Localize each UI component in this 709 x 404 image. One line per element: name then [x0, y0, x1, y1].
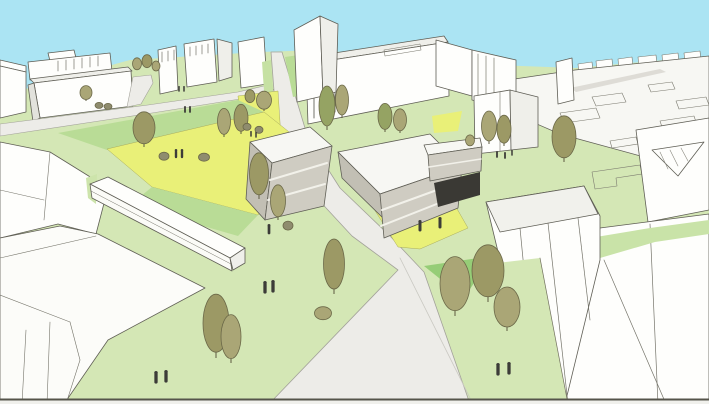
- person: [250, 131, 252, 136]
- 3d-model-viewport[interactable]: [0, 0, 709, 404]
- tree: [245, 90, 255, 103]
- person: [438, 217, 441, 227]
- person: [255, 132, 257, 137]
- person: [496, 363, 500, 374]
- bottom-border-light: [0, 401, 709, 404]
- building-right-a: [436, 40, 472, 96]
- tree: [152, 61, 160, 71]
- tree: [142, 55, 152, 68]
- person: [418, 220, 421, 230]
- person: [183, 86, 185, 91]
- building-far-left: [0, 66, 26, 118]
- person: [511, 150, 513, 155]
- person: [164, 370, 168, 381]
- person: [175, 149, 178, 157]
- tower-left-side: [217, 39, 232, 81]
- person: [507, 362, 511, 373]
- person: [178, 86, 180, 91]
- bush: [159, 152, 169, 160]
- person: [263, 281, 267, 292]
- bottom-border-dark: [0, 399, 709, 401]
- person: [184, 106, 186, 112]
- bush: [283, 221, 293, 230]
- bush: [199, 153, 210, 161]
- tower-center-front: [294, 16, 323, 102]
- tower-center-side: [320, 16, 338, 96]
- bush: [95, 102, 103, 108]
- person: [189, 106, 191, 112]
- bush: [243, 123, 251, 130]
- bush: [104, 103, 112, 109]
- tower-left-2: [184, 39, 217, 87]
- person: [496, 151, 498, 157]
- building-h-side: [510, 90, 538, 150]
- tree: [133, 58, 142, 70]
- person: [504, 152, 506, 158]
- 3d-render-canvas[interactable]: [0, 0, 709, 404]
- bush: [466, 135, 475, 146]
- person: [154, 371, 158, 382]
- thin-tower: [556, 58, 574, 104]
- person: [271, 280, 275, 291]
- person: [268, 224, 271, 233]
- person: [181, 149, 184, 157]
- bush: [315, 307, 332, 320]
